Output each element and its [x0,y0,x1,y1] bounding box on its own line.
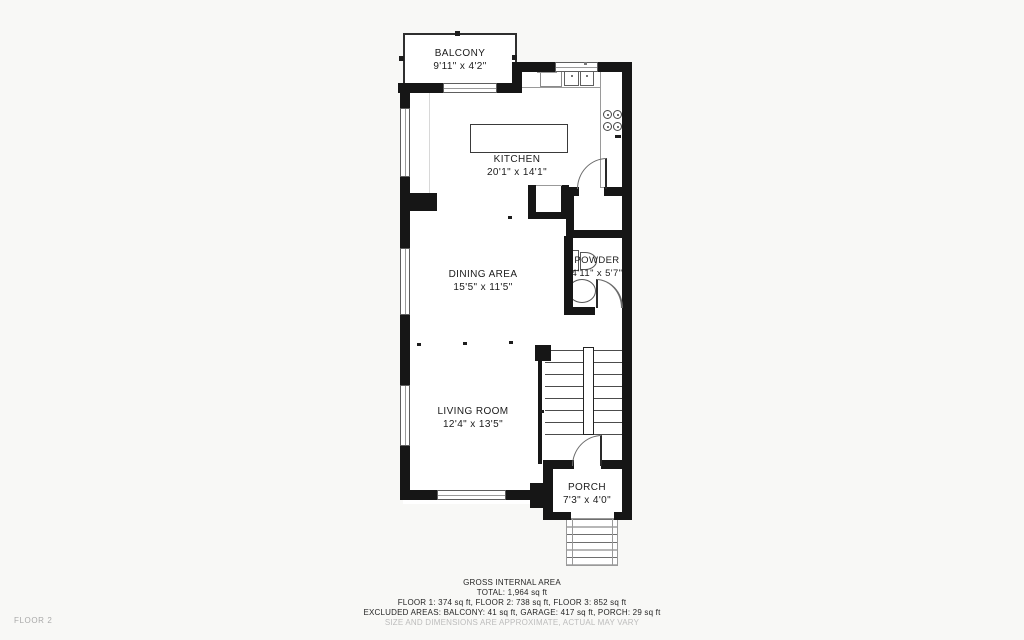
plan-mark [615,135,621,138]
porch-name: PORCH [547,481,627,494]
stove-burner [603,110,612,119]
faucet-mark [584,62,587,65]
ceiling-line [429,92,430,193]
plan-mark [417,343,421,346]
dining-name: DINING AREA [408,268,558,281]
wall-chimney-protrusion [400,193,437,211]
wall-powder-top [566,230,622,238]
balcony-post [455,31,460,36]
wall-top-connector [512,62,522,92]
powder-label: POWDER 4'11" x 5'7" [557,254,637,280]
plan-mark [508,216,512,219]
wall-porch-bottom-left [543,512,571,520]
dining-dims: 15'5" x 11'5" [408,281,558,294]
kitchen-island [470,124,568,153]
stove-burner [613,110,622,119]
staircase-railing [583,347,594,435]
floorplan-canvas: WM [0,0,1024,640]
stove-burner [613,122,622,131]
closet-a-opening [536,185,562,186]
exterior-steps [566,518,618,566]
floorplan-page: { "floor_label": "FLOOR 2", "rooms": { "… [0,0,1024,640]
floor-areas: FLOOR 1: 374 sq ft, FLOOR 2: 738 sq ft, … [0,598,1024,608]
porch-dims: 7'3" x 4'0" [547,494,627,507]
step-stringer [572,518,573,566]
total-area: TOTAL: 1,964 sq ft [0,588,1024,598]
wall-right-exterior [622,62,632,520]
powder-dims: 4'11" x 5'7" [557,267,637,280]
kitchen-window-top [555,62,598,72]
balcony-post [399,56,404,61]
plan-mark [509,341,513,344]
wall-powder-bottom [564,307,595,315]
gross-internal-area-heading: GROSS INTERNAL AREA [0,578,1024,588]
living-dims: 12'4" x 13'5" [398,418,548,431]
wall-porch-top-right [601,460,630,469]
kitchen-dims: 20'1" x 14'1" [457,166,577,179]
stove-burner [603,122,612,131]
living-label: LIVING ROOM 12'4" x 13'5" [398,405,548,431]
disclaimer: SIZE AND DIMENSIONS ARE APPROXIMATE, ACT… [0,618,1024,628]
kitchen-window [400,108,410,177]
living-window-bottom [437,490,506,500]
exterior-step-treads [567,519,617,565]
area-summary: GROSS INTERNAL AREA TOTAL: 1,964 sq ft F… [0,578,1024,628]
excluded-areas: EXCLUDED AREAS: BALCONY: 41 sq ft, GARAG… [0,608,1024,618]
balcony-door [443,83,497,93]
porch-label: PORCH 7'3" x 4'0" [547,481,627,507]
wall-porch-bottom-right [614,512,630,520]
powder-name: POWDER [557,254,637,267]
step-stringer [612,518,613,566]
balcony-post [512,55,517,60]
kitchen-label: KITCHEN 20'1" x 14'1" [457,153,577,179]
kitchen-name: KITCHEN [457,153,577,166]
balcony-label: BALCONY 9'11" x 4'2" [410,47,510,73]
floor-number-label: FLOOR 2 [14,616,52,625]
balcony-name: BALCONY [410,47,510,60]
plan-mark [463,342,467,345]
living-name: LIVING ROOM [398,405,548,418]
dining-label: DINING AREA 15'5" x 11'5" [408,268,558,294]
balcony-dims: 9'11" x 4'2" [410,60,510,73]
